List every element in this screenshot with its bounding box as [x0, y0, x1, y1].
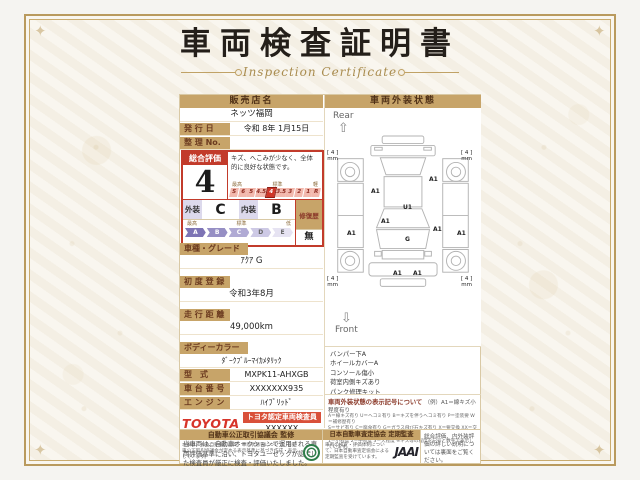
interior-label: 内装: [239, 200, 258, 219]
exterior-condition-column: 車両外装状態 Rear ⇧ ⇩ Front: [324, 95, 481, 428]
first-registration-field: 初 度 登 録 令和3年8月: [180, 269, 323, 302]
scale-item: 4.5: [255, 188, 267, 197]
overall-eval-label: 総合評価: [183, 152, 227, 165]
mileage-field: 走 行 距 離 49,000km: [180, 302, 323, 335]
right-margin-pattern: [484, 106, 604, 450]
certified-inspector-label: トヨタ認定車両検査員: [243, 412, 321, 423]
title-rule-right: [405, 72, 459, 73]
issue-date-label: 発 行 日: [180, 123, 230, 135]
tire-depth-label: [ 4 ] mm: [461, 276, 472, 289]
condition-notes: バンパー下A ホイールカバーA コンソール傷小 荷室内側キズあり パンク修理キッ…: [325, 346, 481, 397]
chassis-row: 車 台 番 号 XXXXXXX935: [180, 382, 323, 396]
eval-comment: キズ、へこみが少なく、全体的に良好な状態です。: [228, 152, 322, 181]
issue-date-row: 発 行 日 令和 8年 1月15日: [180, 122, 323, 136]
fair-trade-stamp-icon: [303, 444, 320, 461]
damage-mark: A1: [371, 188, 380, 195]
scale-label-standard: 標準: [236, 220, 246, 227]
rear-direction: Rear ⇧: [333, 112, 354, 136]
evaluation-box: 総合評価 4 キズ、へこみが少なく、全体的に良好な状態です。 最高 標準 軽 S…: [181, 150, 324, 247]
ref-no-label: 整 理 No.: [180, 137, 230, 149]
scale-label-best: 最高: [232, 181, 242, 188]
tire-depth-label: [ 4 ] mm: [461, 150, 472, 163]
numeric-rating-scale: S 6 5 4.5 4 3.5 3 2 1 R: [228, 188, 322, 199]
numeric-scale-labels: 最高 標準 軽: [228, 181, 322, 188]
chassis-label: 車 台 番 号: [180, 383, 230, 395]
jaai-text: 車両の検査・評価体制について、日本自動車査定協会による定期監査を受けています。: [325, 443, 392, 461]
jaai-logo: JAAI: [394, 445, 418, 459]
rear-label: Rear: [333, 111, 354, 121]
condition-note: バンパー下A: [330, 350, 481, 359]
front-label: Front: [335, 325, 358, 335]
type-row: 型 式 MXPK11-AHXGB: [180, 368, 323, 382]
damage-mark: U1: [403, 204, 412, 211]
scale-label-low: 低: [286, 220, 291, 227]
legend-line: A＝線キズ有り U＝ヘコミ有り B＝キズを伴うヘコミ有り P＝塗装要 W＝補修歴…: [328, 414, 478, 426]
mileage-value: 49,000km: [180, 321, 323, 334]
condition-note: コンソール傷小: [330, 369, 481, 378]
fair-trade-header: 自動車公正取引協議会 監修: [180, 430, 322, 440]
body-color-value: ﾀﾞｰｸﾌﾞﾙｰﾏｲｶﾒﾀﾘｯｸ: [180, 354, 323, 367]
damage-mark: G: [405, 236, 410, 243]
damage-mark: A1: [433, 226, 442, 233]
back-note-text: 総合評価、内外装評価の詳しい説明については裏面をご覧ください。: [421, 430, 480, 468]
body-color-field: ボディーカラー ﾀﾞｰｸﾌﾞﾙｰﾏｲｶﾒﾀﾘｯｸ: [180, 335, 323, 368]
damage-mark: A1: [457, 230, 466, 237]
certificate-sheet: ✦ ✦ ✦ ✦ 車両検査証明書 Inspection Certificate 販…: [24, 14, 616, 466]
jaai-box: 日本自動車査定協会 定期監査 車両の検査・評価体制について、日本自動車査定協会に…: [323, 430, 421, 464]
engine-value: ﾊｲﾌﾞﾘｯﾄﾞ: [230, 397, 323, 408]
symbol-legend: 車両外装状態の表示記号について （例）A1＝線キズ小程度有り A＝線キズ有り U…: [325, 394, 481, 427]
seller-name: ネッツ福岡: [180, 108, 323, 122]
condition-note: 荷室内側キズあり: [330, 378, 481, 387]
exterior-grade: C: [202, 200, 239, 219]
certificate-photo: { "colors": {"gold": "#b99a5e", "tan": "…: [0, 0, 640, 480]
legend-header: 車両外装状態の表示記号について: [328, 399, 422, 406]
tire-depth-label: [ 4 ] mm: [327, 150, 338, 163]
fair-trade-text: 本表は、中古自動車の品質・車両状態等について、自動車公正取引協議会が定める表示基…: [182, 443, 301, 461]
page-title: 車両検査証明書: [26, 26, 614, 63]
first-registration-value: 令和3年8月: [180, 288, 323, 301]
damage-mark: A1: [347, 230, 356, 237]
exterior-header: 車両外装状態: [325, 95, 481, 108]
front-direction: ⇩ Front: [335, 312, 358, 336]
model-field: 車種・グレード ｱｸｱ G: [180, 236, 323, 269]
interior-grade: B: [258, 200, 295, 219]
damage-mark: A1: [429, 176, 438, 183]
model-label: 車種・グレード: [180, 243, 248, 255]
repair-history-label: 修復歴: [296, 200, 322, 229]
damage-mark: A1: [393, 270, 402, 277]
issue-date-value: 令和 8年 1月15日: [230, 123, 323, 134]
scale-label-low: 軽: [313, 181, 318, 188]
page-subtitle: Inspection Certificate: [243, 65, 397, 79]
damage-mark: A1: [413, 270, 422, 277]
body-color-label: ボディーカラー: [180, 342, 248, 354]
condition-note: ホイールカバーA: [330, 359, 481, 368]
chassis-value: XXXXXXX935: [230, 384, 323, 393]
car-outline-graphic: [333, 134, 473, 312]
engine-label: エ ン ジ ン: [180, 397, 230, 409]
letter-scale-labels: 最高 標準 低: [183, 220, 295, 227]
damage-mark: A1: [381, 218, 390, 225]
back-note-box: 総合評価、内外装評価の詳しい説明については裏面をご覧ください。: [421, 430, 480, 464]
scale-item-selected: 4: [266, 188, 276, 197]
title-block: 車両検査証明書 Inspection Certificate: [26, 26, 614, 79]
certification-footer: 自動車公正取引協議会 監修 本表は、中古自動車の品質・車両状態等について、自動車…: [180, 429, 480, 464]
fair-trade-box: 自動車公正取引協議会 監修 本表は、中古自動車の品質・車両状態等について、自動車…: [180, 430, 323, 464]
jaai-header: 日本自動車査定協会 定期監査: [323, 430, 420, 440]
ref-no-row: 整 理 No.: [180, 136, 323, 150]
exterior-label: 外装: [183, 200, 202, 219]
vehicle-info-column: 販売店名 ネッツ福岡 発 行 日 令和 8年 1月15日 整 理 No. 総合評…: [180, 95, 323, 428]
tire-depth-label: [ 4 ] mm: [327, 276, 338, 289]
scale-label-best: 最高: [187, 220, 197, 227]
car-condition-diagram: Rear ⇧ ⇩ Front: [325, 108, 481, 346]
type-value: MXPK11-AHXGB: [230, 370, 323, 379]
scale-label-standard: 標準: [272, 181, 282, 188]
engine-row: エ ン ジ ン ﾊｲﾌﾞﾘｯﾄﾞ: [180, 396, 323, 410]
content-panel: 販売店名 ネッツ福岡 発 行 日 令和 8年 1月15日 整 理 No. 総合評…: [180, 95, 480, 463]
left-margin-pattern: [36, 106, 156, 450]
mileage-label: 走 行 距 離: [180, 309, 230, 321]
scale-item: R: [311, 188, 321, 197]
model-value: ｱｸｱ G: [180, 255, 323, 268]
overall-grade: 4: [183, 165, 227, 200]
title-rule-left: [181, 72, 235, 73]
first-registration-label: 初 度 登 録: [180, 276, 230, 288]
seller-header: 販売店名: [180, 95, 323, 108]
front-arrow-icon: ⇩: [335, 312, 358, 326]
type-label: 型 式: [180, 369, 230, 381]
